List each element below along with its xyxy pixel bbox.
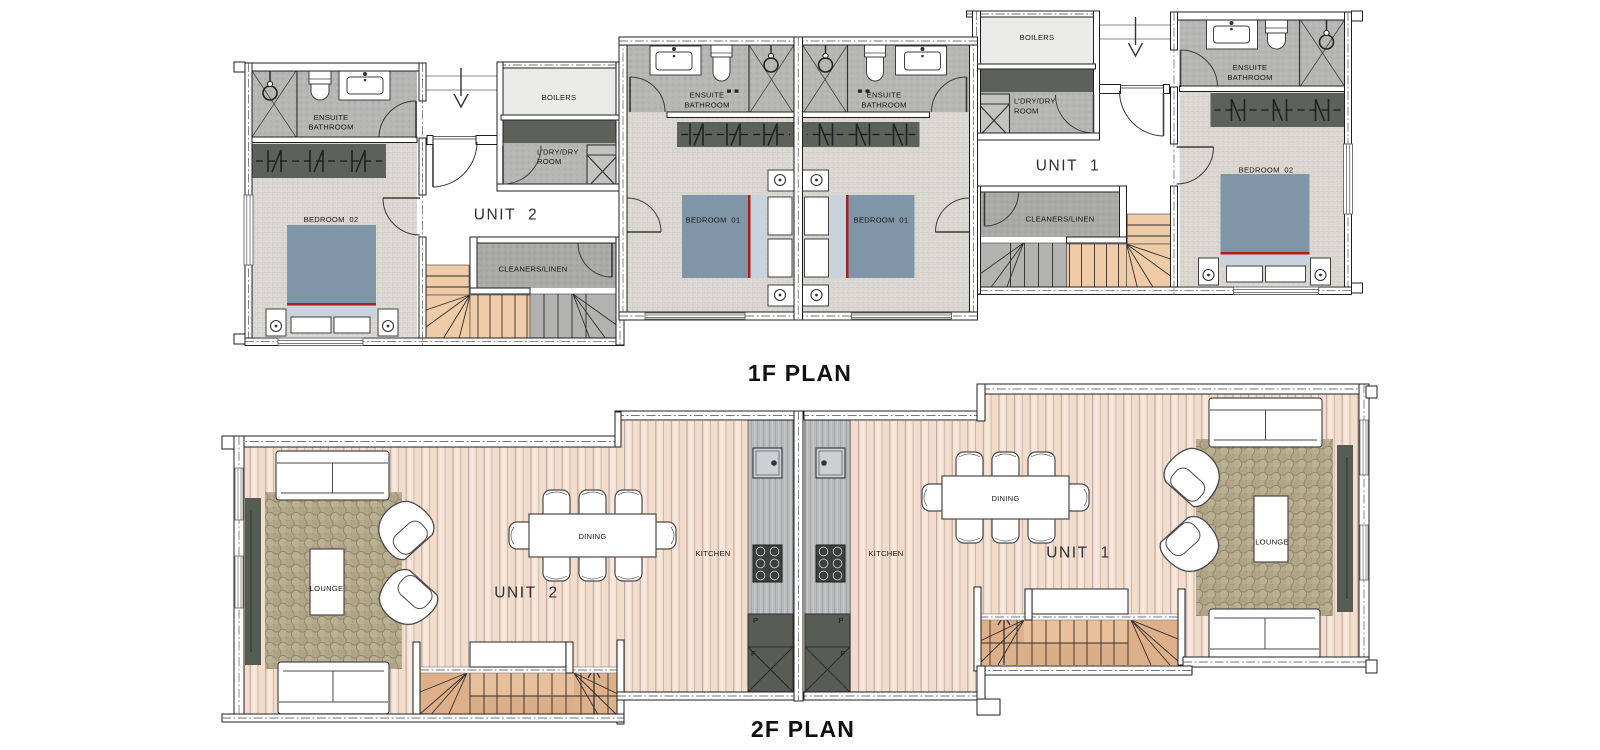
svg-text:CLEANERS/LINEN: CLEANERS/LINEN [499,265,568,274]
svg-text:BATHROOM: BATHROOM [308,123,353,132]
svg-text:KITCHEN: KITCHEN [868,549,903,558]
svg-text:ENSUITE: ENSUITE [1233,63,1268,72]
svg-text:CLEANERS/LINEN: CLEANERS/LINEN [1026,215,1095,224]
svg-text:BATHROOM: BATHROOM [684,101,729,110]
svg-text:KITCHEN: KITCHEN [695,549,730,558]
svg-text:ROOM: ROOM [537,157,562,166]
svg-text:UNIT 1: UNIT 1 [1046,545,1111,562]
svg-text:P: P [753,616,758,625]
svg-text:UNIT 2: UNIT 2 [494,585,559,602]
svg-text:BATHROOM: BATHROOM [861,101,906,110]
svg-text:2F PLAN: 2F PLAN [751,716,855,742]
svg-text:BATHROOM: BATHROOM [1227,73,1272,82]
svg-text:ENSUITE: ENSUITE [867,91,902,100]
svg-text:LOUNGE: LOUNGE [1255,538,1289,547]
svg-text:BOILERS: BOILERS [1020,33,1055,42]
svg-text:UNIT 2: UNIT 2 [474,207,539,224]
svg-text:1F PLAN: 1F PLAN [748,360,852,386]
svg-text:F: F [751,649,756,658]
svg-text:BEDROOM 01: BEDROOM 01 [686,216,741,225]
svg-text:L’DRY/DRY: L’DRY/DRY [537,148,579,157]
svg-text:ENSUITE: ENSUITE [314,113,349,122]
svg-text:P: P [838,616,843,625]
svg-text:BEDROOM 01: BEDROOM 01 [854,216,909,225]
svg-text:BEDROOM 02: BEDROOM 02 [1239,166,1294,175]
svg-text:ROOM: ROOM [1014,107,1039,116]
svg-text:LOUNGE: LOUNGE [310,584,344,593]
svg-text:L’DRY/DRY: L’DRY/DRY [1014,97,1056,106]
svg-text:BEDROOM 02: BEDROOM 02 [304,215,359,224]
svg-text:F: F [841,649,846,658]
svg-text:ENSUITE: ENSUITE [690,91,725,100]
svg-text:BOILERS: BOILERS [542,93,577,102]
svg-text:UNIT 1: UNIT 1 [1036,158,1101,175]
